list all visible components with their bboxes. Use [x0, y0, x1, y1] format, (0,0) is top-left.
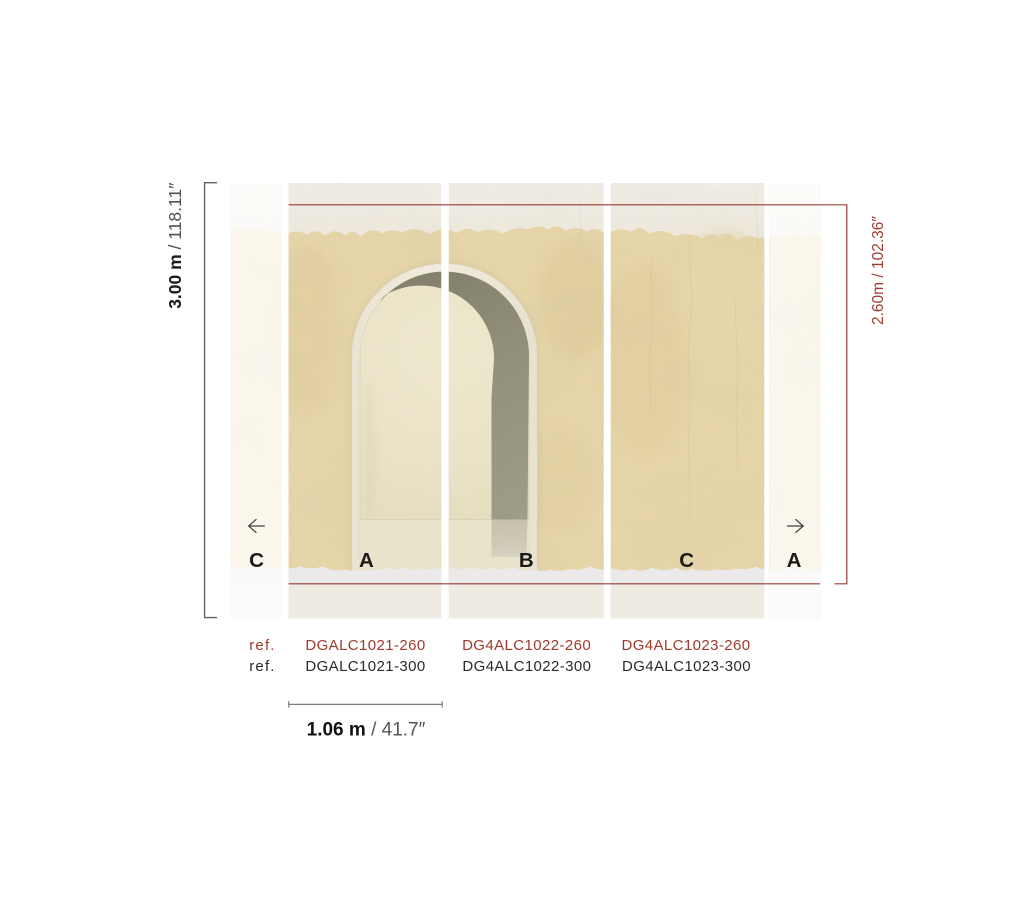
svg-text:ref.: ref. — [249, 658, 275, 675]
svg-text:DG4ALC1022-300: DG4ALC1022-300 — [462, 658, 591, 675]
svg-text:2.60m / 102.36″: 2.60m / 102.36″ — [870, 216, 887, 325]
svg-text:B: B — [519, 549, 534, 572]
svg-text:A: A — [787, 549, 802, 572]
svg-text:DG4ALC1023-300: DG4ALC1023-300 — [622, 658, 751, 675]
svg-text:DGALC1021-300: DGALC1021-300 — [305, 658, 425, 675]
svg-text:C: C — [679, 549, 694, 572]
svg-text:DGALC1021-260: DGALC1021-260 — [305, 637, 425, 654]
svg-text:DG4ALC1022-260: DG4ALC1022-260 — [462, 637, 591, 654]
svg-text:C: C — [249, 549, 264, 572]
svg-text:A: A — [359, 549, 374, 572]
svg-text:DG4ALC1023-260: DG4ALC1023-260 — [621, 637, 750, 654]
svg-text:1.06 m / 41.7″: 1.06 m / 41.7″ — [307, 719, 426, 740]
svg-text:3.00 m / 118.11″: 3.00 m / 118.11″ — [165, 183, 185, 309]
svg-text:ref.: ref. — [249, 637, 275, 654]
